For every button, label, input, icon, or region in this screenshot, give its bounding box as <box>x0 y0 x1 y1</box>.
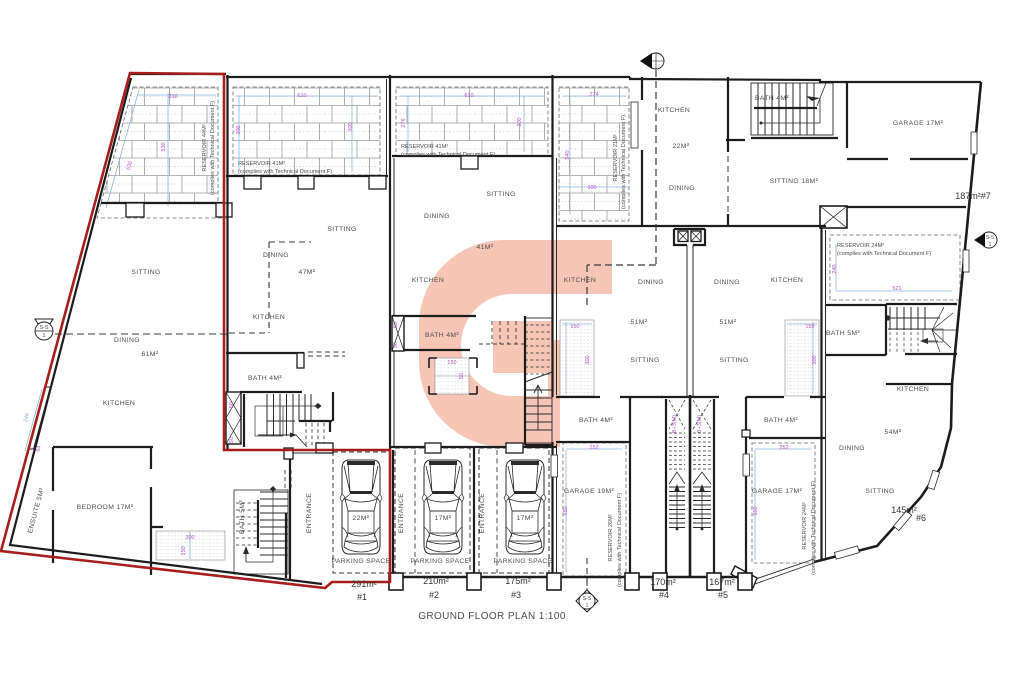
svg-text:291m²: 291m² <box>351 579 377 589</box>
svg-text:1: 1 <box>42 333 45 339</box>
svg-text:300: 300 <box>587 185 596 191</box>
svg-text:S-S: S-S <box>583 596 592 602</box>
svg-text:SITTING: SITTING <box>486 191 515 198</box>
svg-text:150: 150 <box>570 324 579 330</box>
svg-text:(complies with Technical Docum: (complies with Technical Document F) <box>210 101 216 195</box>
svg-text:B+3(M): B+3(M) <box>672 415 678 433</box>
svg-text:BATH 4M²: BATH 4M² <box>248 375 282 382</box>
svg-text:KITCHEN: KITCHEN <box>412 277 444 284</box>
svg-text:61M²: 61M² <box>142 351 159 358</box>
svg-text:167m²: 167m² <box>709 577 735 587</box>
svg-text:DINING: DINING <box>638 279 664 286</box>
svg-text:PARKING SPACE: PARKING SPACE <box>331 558 390 565</box>
svg-text:DINING: DINING <box>714 279 740 286</box>
svg-text:SITTING: SITTING <box>131 269 160 276</box>
svg-text:BATH 5M²: BATH 5M² <box>239 500 246 534</box>
svg-text:S-S: S-S <box>39 325 49 331</box>
svg-text:310: 310 <box>168 94 177 100</box>
svg-text:BATH 4M²: BATH 4M² <box>579 417 613 424</box>
svg-text:#3: #3 <box>511 590 521 600</box>
svg-text:22M²: 22M² <box>353 515 370 522</box>
svg-text:#4: #4 <box>659 590 669 600</box>
svg-text:SITTING: SITTING <box>719 357 748 364</box>
svg-text:50: 50 <box>229 402 235 408</box>
svg-text:BATH 4M²: BATH 4M² <box>425 332 459 339</box>
svg-text:50: 50 <box>459 373 465 379</box>
svg-text:145m²: 145m² <box>891 505 917 515</box>
svg-text:540: 540 <box>565 150 571 159</box>
svg-text:B+3(M): B+3(M) <box>697 415 703 433</box>
svg-text:PARKING SPACE: PARKING SPACE <box>493 558 552 565</box>
svg-text:41M²: 41M² <box>477 244 494 251</box>
svg-text:47M²: 47M² <box>299 269 316 276</box>
svg-text:550: 550 <box>563 506 569 515</box>
svg-text:#6: #6 <box>916 513 926 523</box>
svg-text:51M²: 51M² <box>631 319 648 326</box>
svg-text:KITCHEN: KITCHEN <box>253 314 285 321</box>
svg-text:DINING: DINING <box>263 252 289 259</box>
svg-text:KITCHEN: KITCHEN <box>897 386 929 393</box>
svg-text:(complies with Technical Docum: (complies with Technical Document F) <box>811 481 817 575</box>
svg-text:252: 252 <box>779 445 788 451</box>
svg-text:150: 150 <box>181 546 187 555</box>
svg-text:ENTRANCE: ENTRANCE <box>479 493 486 533</box>
svg-text:GROUND FLOOR PLAN 1:100: GROUND FLOOR PLAN 1:100 <box>418 611 566 622</box>
svg-text:50: 50 <box>393 322 399 328</box>
svg-text:DINING: DINING <box>114 337 140 344</box>
svg-text:KITCHEN: KITCHEN <box>658 107 690 114</box>
svg-text:DINING: DINING <box>669 185 695 192</box>
svg-text:51M²: 51M² <box>720 319 737 326</box>
svg-text:300: 300 <box>348 122 354 131</box>
svg-text:530: 530 <box>161 142 167 151</box>
svg-text:SITTING: SITTING <box>630 357 659 364</box>
svg-text:300: 300 <box>585 355 591 364</box>
svg-text:RESERVOIR 41M²: RESERVOIR 41M² <box>238 161 285 167</box>
svg-text:50: 50 <box>393 342 399 348</box>
svg-text:(complies with Technical Docum: (complies with Technical Document F) <box>617 493 623 587</box>
svg-text:RESERVOIR 21M²: RESERVOIR 21M² <box>613 134 619 181</box>
svg-text:S-S: S-S <box>986 235 995 241</box>
svg-text:(complies with Technical Docum: (complies with Technical Document F) <box>401 152 495 158</box>
svg-text:(complies with Technical Docum: (complies with Technical Document F) <box>621 115 627 209</box>
svg-text:(complies with Technical Docum: (complies with Technical Document F) <box>837 251 931 257</box>
svg-text:150: 150 <box>805 324 814 330</box>
svg-text:(complies with Technical Docum: (complies with Technical Document F) <box>238 169 332 175</box>
svg-text:SITTING 18M²: SITTING 18M² <box>770 178 819 185</box>
svg-text:RESERVOIR 41M²: RESERVOIR 41M² <box>401 144 448 150</box>
svg-text:240: 240 <box>832 264 838 273</box>
svg-text:50: 50 <box>229 437 235 443</box>
svg-text:1: 1 <box>989 242 992 248</box>
svg-text:22M²: 22M² <box>673 143 690 150</box>
svg-text:BATH 4M²: BATH 4M² <box>755 95 789 102</box>
svg-text:ENTRANCE: ENTRANCE <box>398 493 405 533</box>
svg-text:64: 64 <box>35 445 42 452</box>
svg-text:300: 300 <box>812 355 818 364</box>
svg-text:276: 276 <box>401 118 407 127</box>
svg-text:300: 300 <box>185 535 194 541</box>
svg-text:274: 274 <box>589 92 598 98</box>
svg-text:RESERVOIR 24M²: RESERVOIR 24M² <box>802 502 808 549</box>
svg-text:BEDROOM 17M²: BEDROOM 17M² <box>77 504 134 511</box>
svg-text:DINING: DINING <box>839 445 865 452</box>
svg-text:54M²: 54M² <box>885 429 902 436</box>
svg-text:SITTING: SITTING <box>327 226 356 233</box>
svg-text:ENTRANCE: ENTRANCE <box>306 493 313 533</box>
svg-text:521: 521 <box>892 286 901 292</box>
svg-text:KITCHEN: KITCHEN <box>564 277 596 284</box>
svg-text:GARAGE 17M²: GARAGE 17M² <box>752 488 803 495</box>
svg-text:SITTING: SITTING <box>865 488 894 495</box>
svg-text:610: 610 <box>464 93 473 99</box>
svg-text:150: 150 <box>447 360 456 366</box>
svg-text:GARAGE 19M²: GARAGE 19M² <box>564 488 615 495</box>
svg-text:300: 300 <box>236 125 242 134</box>
svg-text:RESERVOIR 26M²: RESERVOIR 26M² <box>608 514 614 561</box>
svg-text:BATH 4M²: BATH 4M² <box>764 417 798 424</box>
svg-text:1: 1 <box>586 603 589 609</box>
svg-text:#1: #1 <box>357 592 367 602</box>
svg-text:#5: #5 <box>718 590 728 600</box>
svg-text:17M²: 17M² <box>517 515 534 522</box>
svg-text:17M²: 17M² <box>435 515 452 522</box>
svg-text:175m²: 175m² <box>505 576 531 586</box>
svg-text:550: 550 <box>753 506 759 515</box>
svg-text:RESERVOIR 24M²: RESERVOIR 24M² <box>837 243 884 249</box>
svg-text:DINING: DINING <box>424 213 450 220</box>
svg-text:KITCHEN: KITCHEN <box>771 277 803 284</box>
svg-text:610: 610 <box>297 93 306 99</box>
svg-text:GARAGE 17M²: GARAGE 17M² <box>893 120 944 127</box>
svg-text:210m²: 210m² <box>423 576 449 586</box>
svg-text:PARKING SPACE: PARKING SPACE <box>410 558 469 565</box>
svg-text:252: 252 <box>589 445 598 451</box>
svg-text:#2: #2 <box>429 590 439 600</box>
svg-text:300: 300 <box>517 117 523 126</box>
svg-text:KITCHEN: KITCHEN <box>103 400 135 407</box>
svg-text:187m²#7: 187m²#7 <box>955 191 991 201</box>
svg-text:RESERVOIR 44M²: RESERVOIR 44M² <box>202 124 208 171</box>
svg-text:170m²: 170m² <box>650 577 676 587</box>
svg-text:BATH 5M²: BATH 5M² <box>826 330 860 337</box>
